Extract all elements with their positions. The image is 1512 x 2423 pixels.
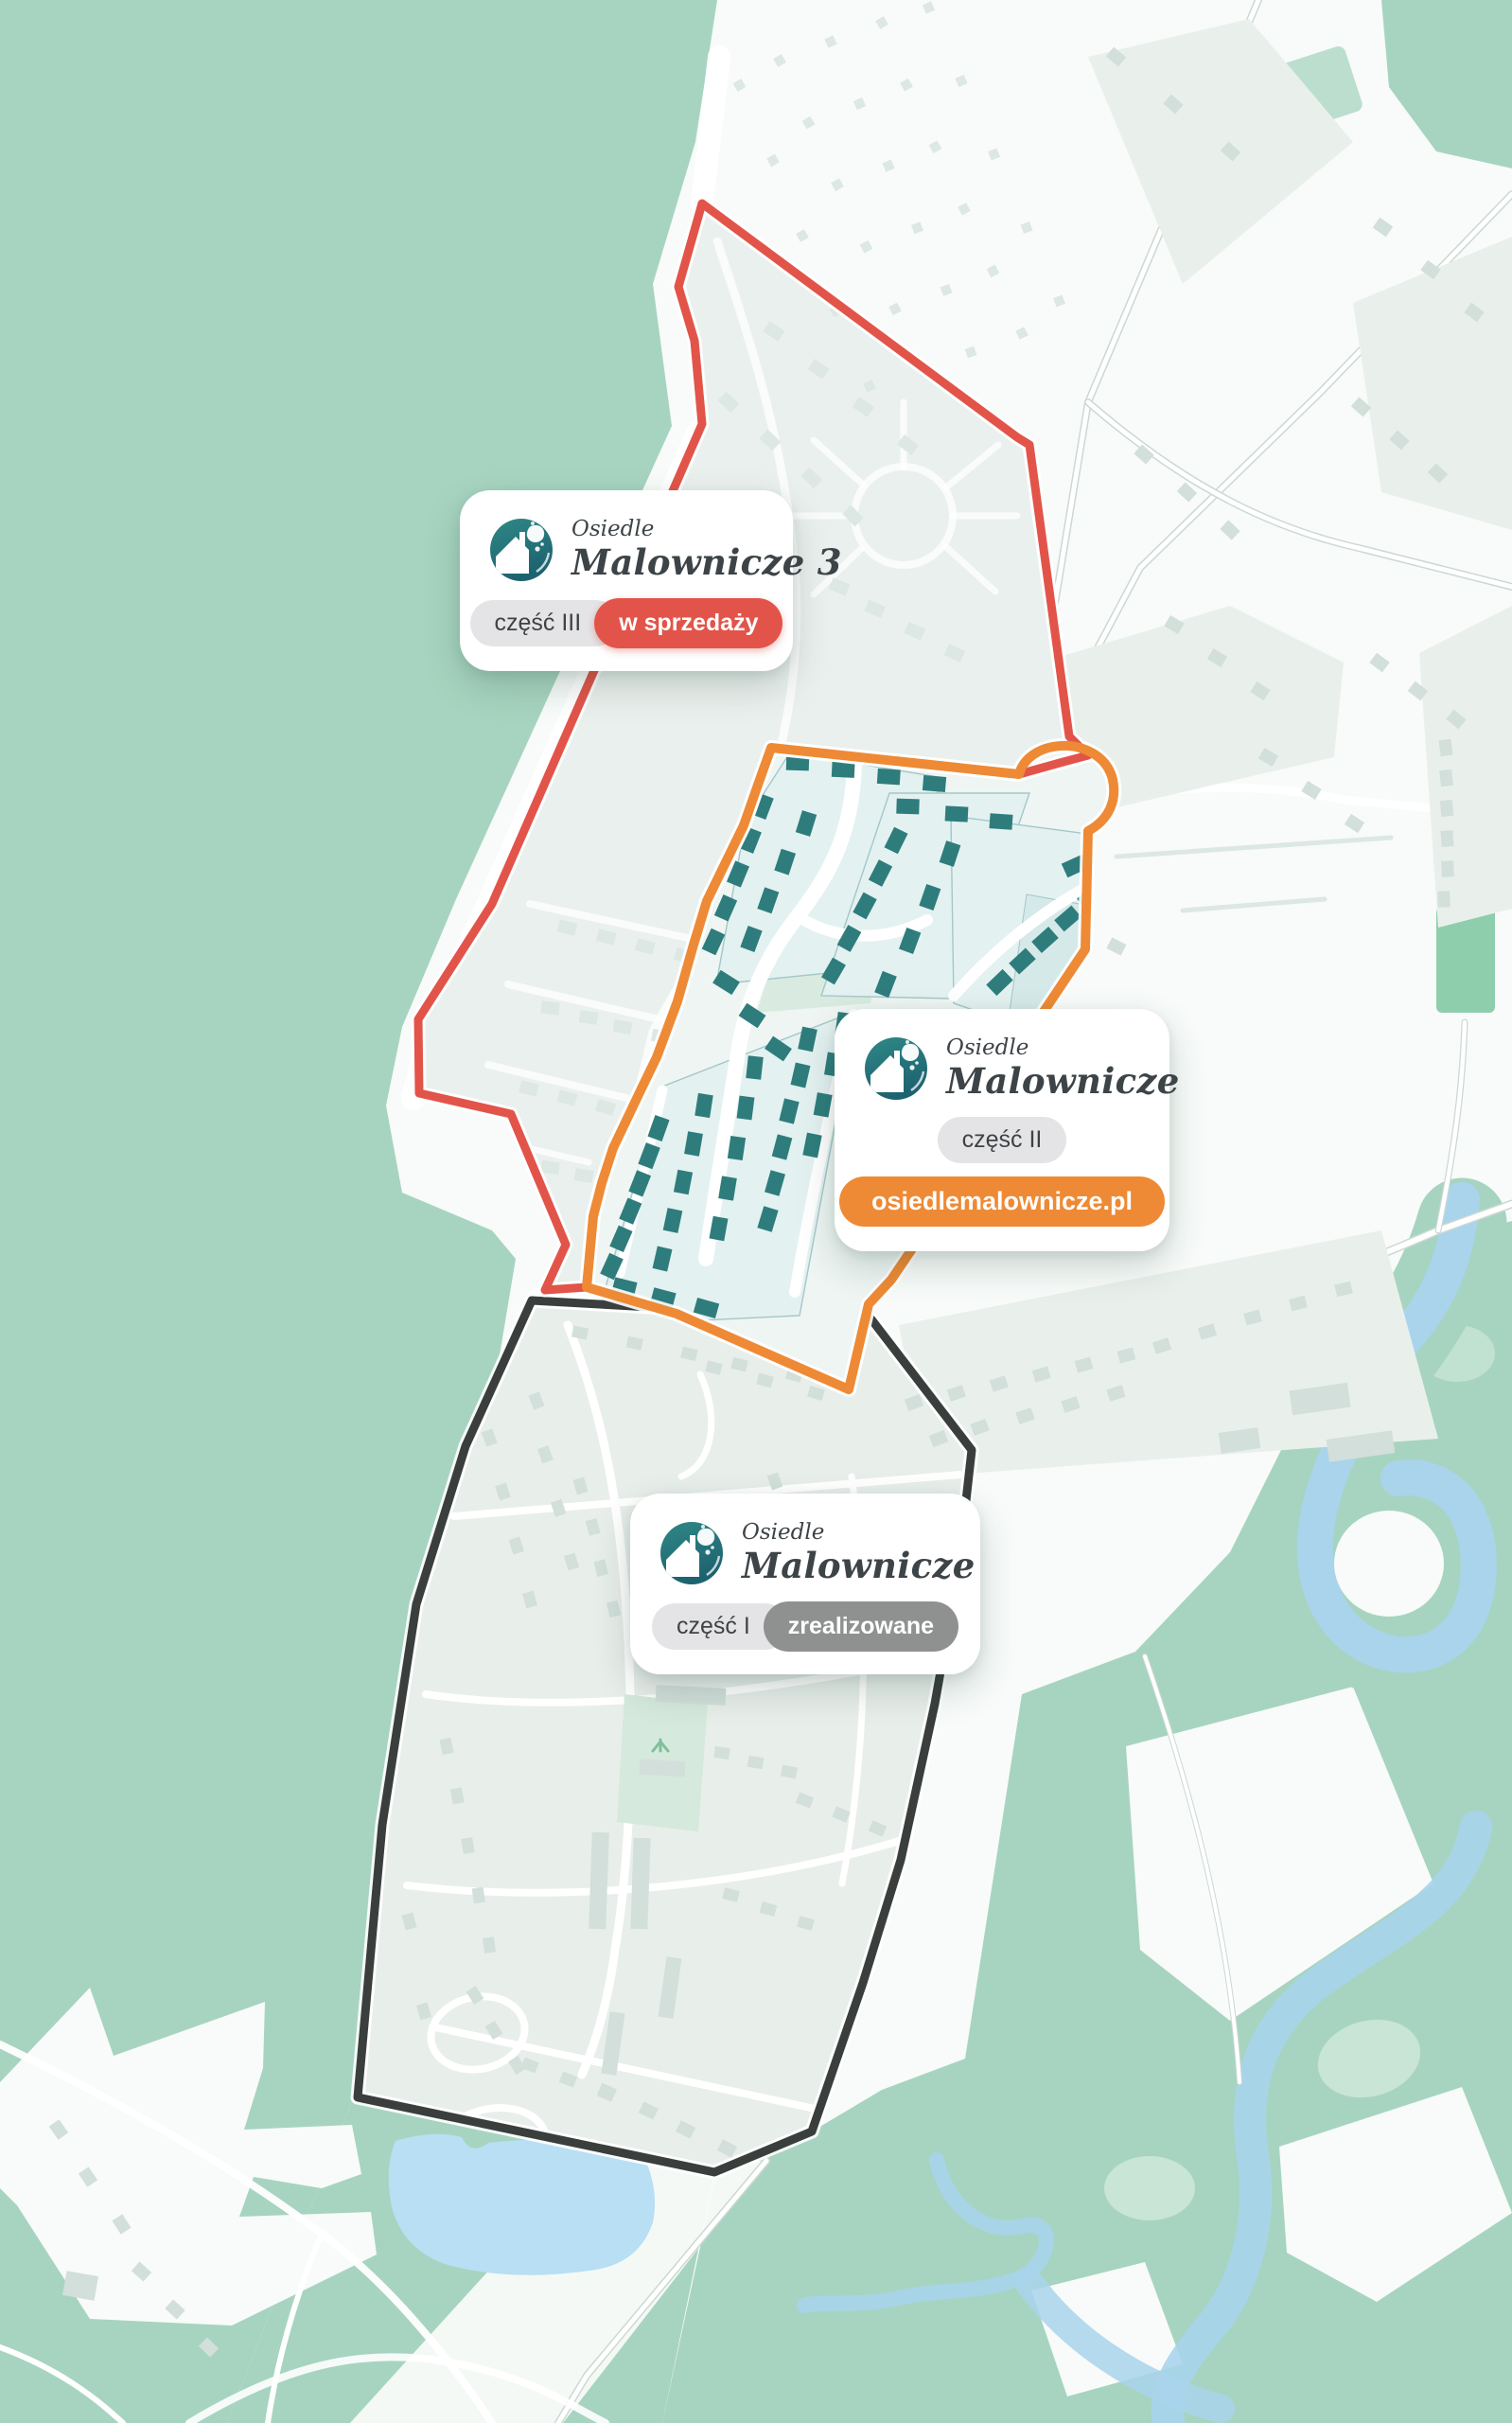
globe-house-icon	[657, 1518, 727, 1588]
estate-map-page: Osiedle Malownicze 3 część III w sprzeda…	[0, 0, 1512, 2423]
house-footprint	[728, 1136, 746, 1160]
card-part2-header: Osiedle Malownicze	[835, 1009, 1169, 1113]
card-part2-pills: część II osiedlemalownicze.pl	[835, 1113, 1169, 1251]
building-footprint	[1440, 830, 1453, 847]
card-part3-pills: część III w sprzedaży	[460, 594, 793, 671]
brand-name-label: Malownicze 3	[571, 541, 842, 583]
globe-house-icon	[861, 1034, 931, 1104]
house-footprint	[832, 762, 855, 778]
house-footprint	[877, 769, 901, 786]
building-footprint	[483, 1937, 496, 1953]
globe-house-icon	[486, 515, 556, 585]
building-footprint	[1437, 891, 1450, 907]
brand-top-label: Osiedle	[946, 1035, 1180, 1060]
house-footprint	[746, 1055, 764, 1080]
planned-house	[579, 1010, 599, 1025]
building-footprint	[1441, 860, 1454, 877]
brand-top-label: Osiedle	[742, 1520, 976, 1545]
status-badge-completed: zrealizowane	[764, 1601, 958, 1652]
card-part1[interactable]: Osiedle Malownicze część I zrealizowane	[630, 1494, 980, 1674]
house-footprint	[896, 799, 920, 815]
map-canvas	[0, 0, 1512, 2423]
card-part3[interactable]: Osiedle Malownicze 3 część III w sprzeda…	[460, 490, 793, 671]
card-part2[interactable]: Osiedle Malownicze część II osiedlemalow…	[835, 1009, 1169, 1251]
building-footprint	[1440, 800, 1453, 817]
stage-badge: część II	[938, 1117, 1067, 1163]
card-part3-header: Osiedle Malownicze 3	[460, 490, 793, 594]
building-footprint	[472, 1887, 485, 1904]
house-footprint	[737, 1096, 755, 1121]
house-footprint	[923, 775, 946, 792]
planned-house	[540, 1160, 560, 1175]
brand-name-label: Malownicze	[946, 1060, 1180, 1102]
building-footprint	[713, 1746, 730, 1760]
planned-house	[540, 1000, 559, 1015]
brand-name-label: Malownicze	[742, 1545, 976, 1586]
card-part1-header: Osiedle Malownicze	[630, 1494, 980, 1598]
house-footprint	[945, 805, 969, 822]
house-footprint	[989, 813, 1012, 830]
card-part1-pills: część I zrealizowane	[630, 1598, 980, 1674]
website-link-pill[interactable]: osiedlemalownicze.pl	[839, 1176, 1165, 1227]
status-badge-for-sale: w sprzedaży	[594, 598, 782, 648]
building-footprint	[1439, 769, 1453, 787]
building-footprint	[1439, 739, 1453, 756]
brand-top-label: Osiedle	[571, 517, 842, 541]
